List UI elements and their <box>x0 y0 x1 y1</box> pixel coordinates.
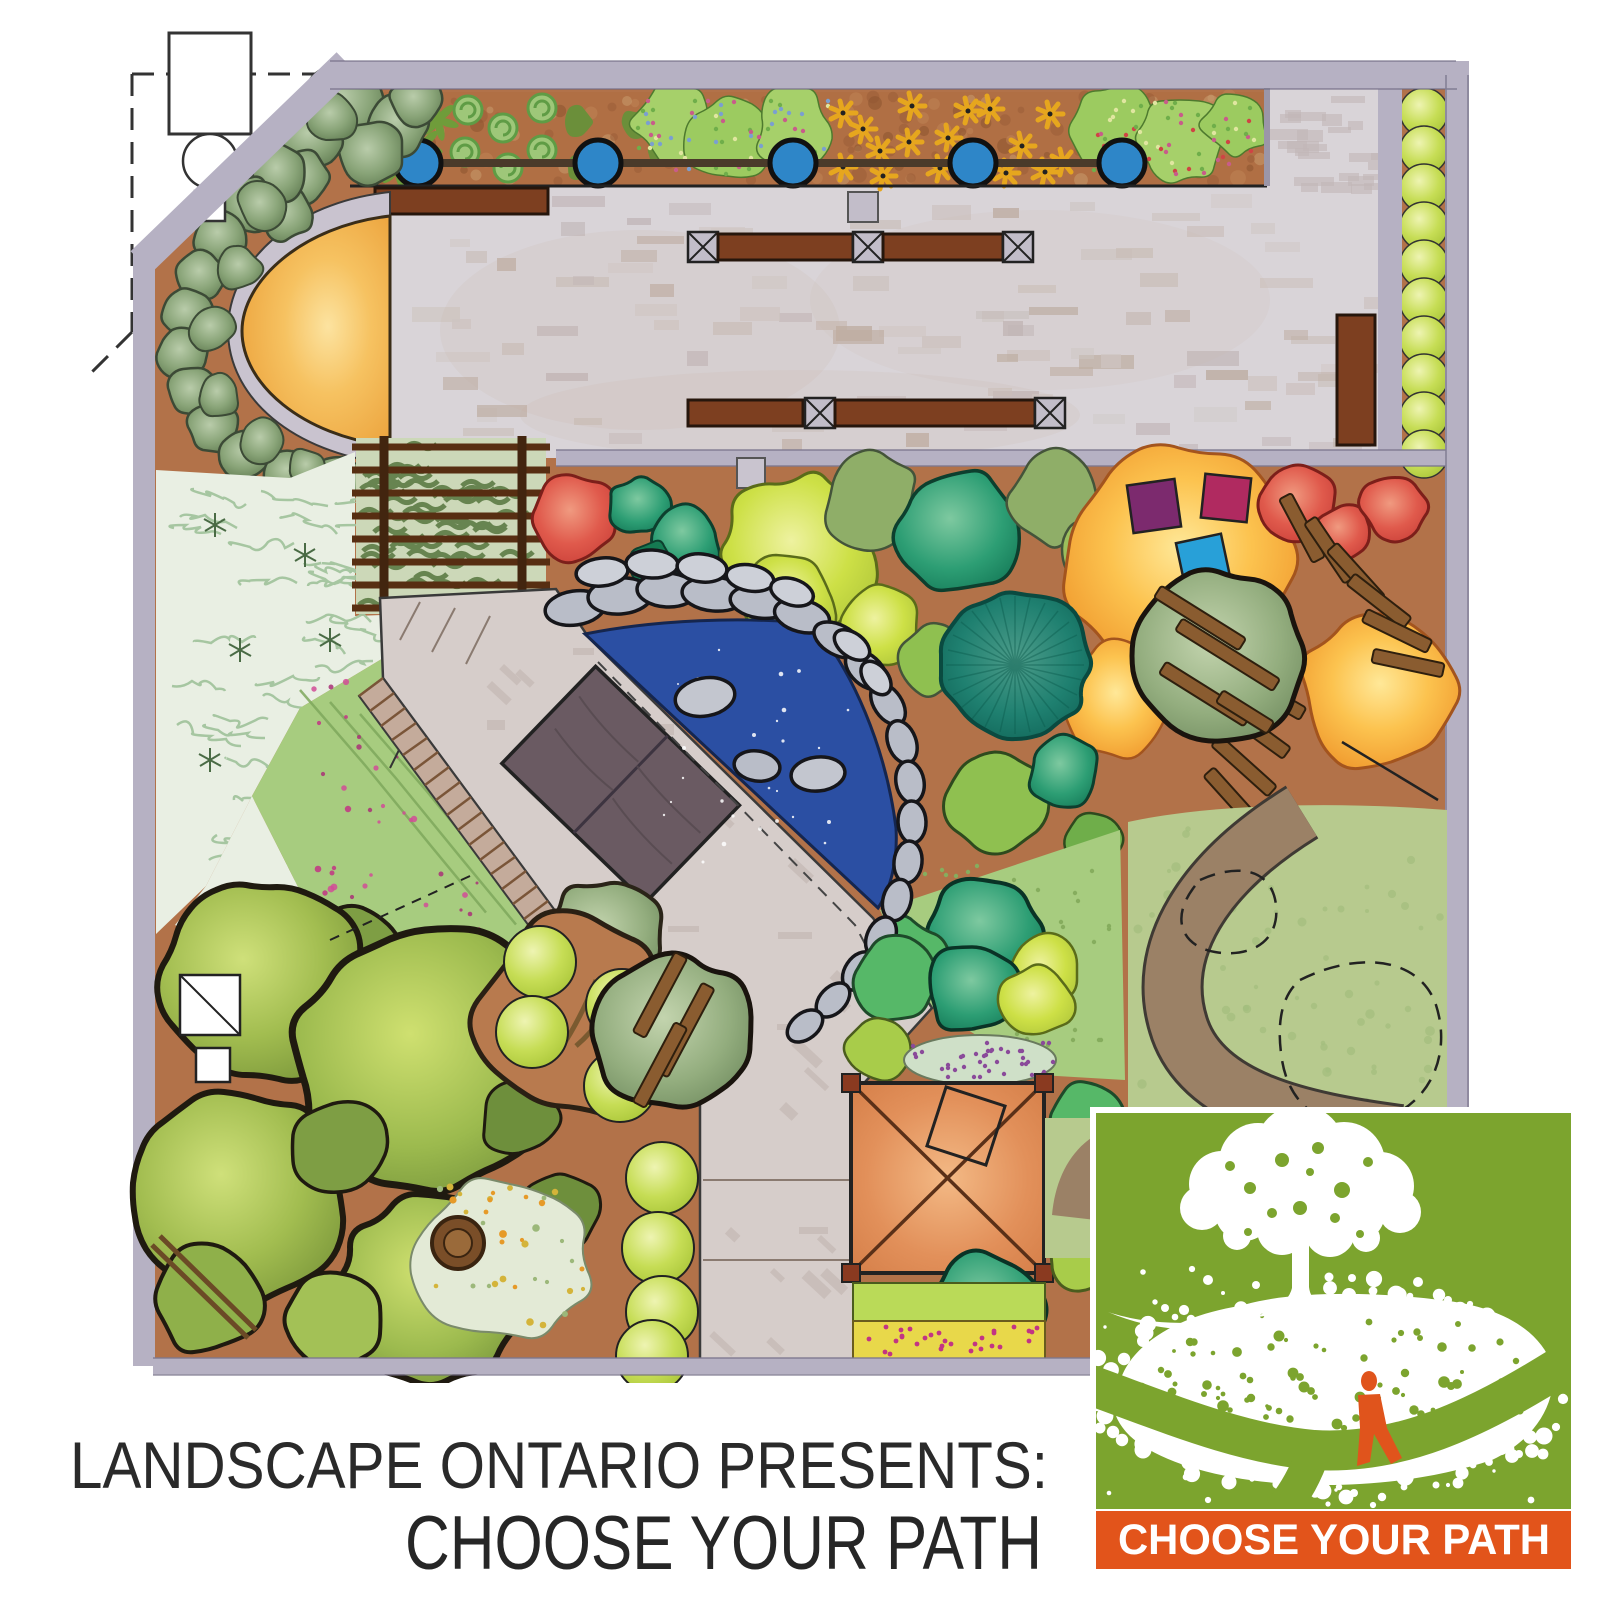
svg-text:LANDSCAPE ONTARIO PRESENTS:: LANDSCAPE ONTARIO PRESENTS: <box>70 1428 1048 1502</box>
svg-text:CHOOSE YOUR PATH: CHOOSE YOUR PATH <box>405 1501 1042 1586</box>
svg-text:CHOOSE YOUR PATH: CHOOSE YOUR PATH <box>1118 1516 1550 1564</box>
